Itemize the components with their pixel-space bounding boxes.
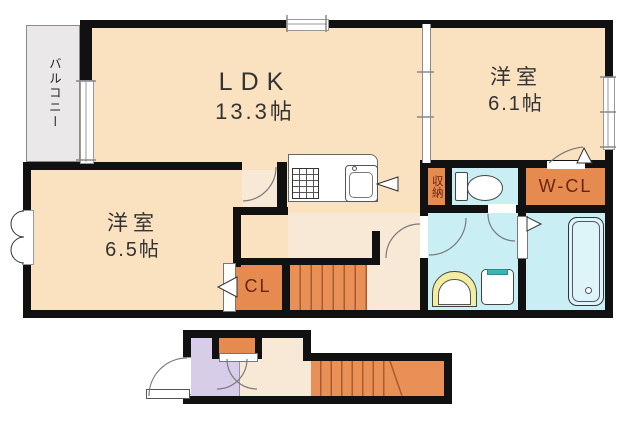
wall [282,263,290,310]
door-opening [488,204,516,213]
sink-bowl [349,172,373,198]
wall [80,22,92,82]
washer-lid [487,269,508,275]
wall [183,330,311,338]
wall [80,20,613,28]
washbasin-bowl [438,279,471,305]
wall [303,353,452,361]
closet-sliding-door [219,353,258,362]
stove-icon [292,168,319,199]
ldk-size: 13.3帖 [215,98,295,126]
partition-wall [422,24,431,163]
storage-label: 収納 [428,166,445,207]
wall [605,20,613,318]
window-icon [22,210,34,265]
stairs-upper [290,265,367,310]
floorplan-canvas: バルコニー LDK 13.3帖 洋室 6.1帖 洋室 6.5帖 収納 W-CL … [0,0,640,426]
bedroom-left-size: 6.5帖 [105,238,161,263]
entrance-closet [219,338,256,353]
bedroom-right-name: 洋室 [490,65,542,91]
window-icon [286,19,329,31]
balcony-sliding-door [80,80,94,164]
wall [183,330,191,358]
room-label-bedroom-right: 洋室 6.1帖 [436,60,596,122]
bathtub-drain [585,287,592,294]
wall [212,332,219,359]
wall [23,310,613,318]
toilet-bowl [467,175,503,201]
stairs-lower-treads [311,361,393,396]
wall [518,205,612,213]
ldk-name: LDK [219,67,292,98]
bath-sliding-door [517,216,528,259]
wall [372,231,380,265]
room-label-bedroom-left: 洋室 6.5帖 [48,206,218,268]
balcony-label: バルコニー [26,25,80,162]
bedroom-right-size: 6.1帖 [488,92,544,117]
wcl-label: W-CL [526,168,605,205]
room-label-ldk: LDK 13.3帖 [160,66,350,126]
sink-faucet [352,166,357,171]
wall [23,162,242,170]
entry-nook-floor [242,170,277,207]
wall [183,396,452,404]
door-opening [420,216,428,258]
entrance-door-leaf [146,389,190,399]
window-icon [603,77,615,150]
cl-label: CL [234,263,282,310]
wall [233,207,288,215]
bedroom-left-name: 洋室 [107,211,159,237]
